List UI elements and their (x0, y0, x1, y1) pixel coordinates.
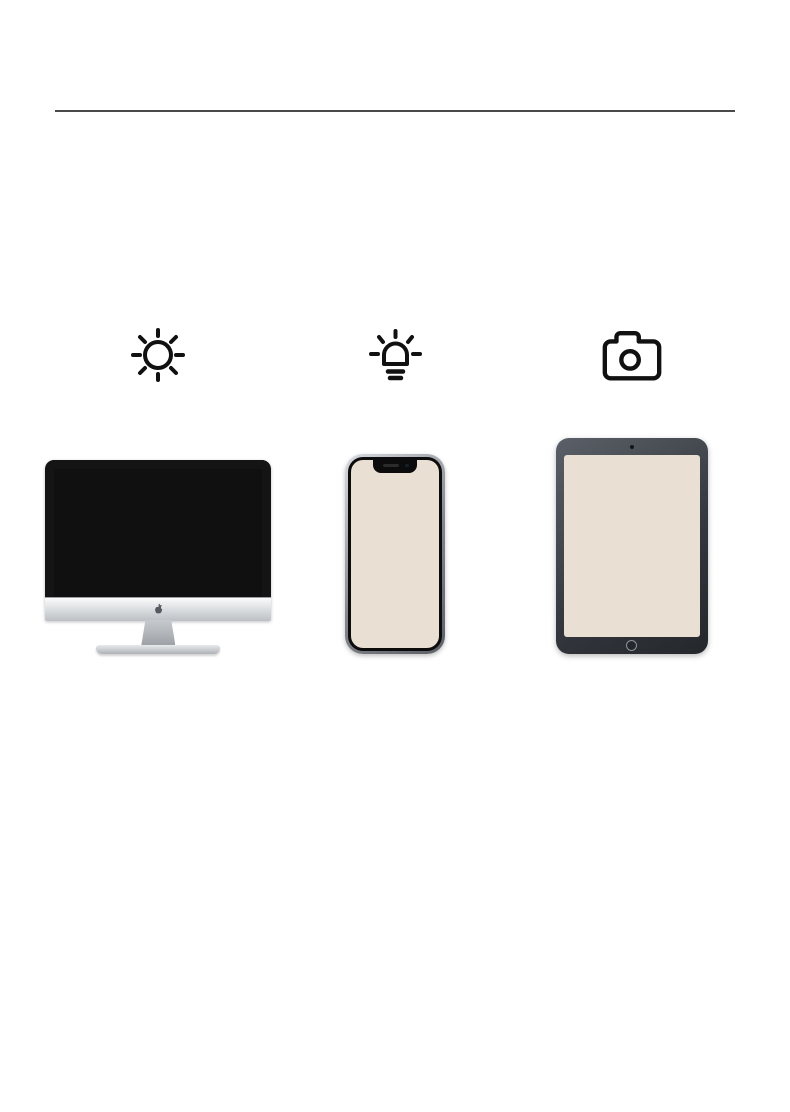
product-column-2 (277, 142, 514, 302)
device-column-phone (277, 436, 514, 676)
devices-row (40, 436, 750, 676)
tablet-mockup (513, 436, 750, 654)
bulb-icon (362, 324, 428, 388)
camera-icon (599, 324, 665, 388)
apple-logo-icon (153, 603, 164, 616)
tablet-home-button (626, 640, 637, 651)
phone-notch (373, 460, 417, 473)
tablet-screen-photo (564, 455, 700, 637)
sun-icon (125, 324, 191, 388)
product-images-row (40, 142, 750, 302)
wardrobe-image-strong-light (72, 142, 244, 302)
wardrobe-image-natural-light (546, 142, 718, 302)
computer-stand-neck (141, 620, 175, 645)
phone-mockup (277, 436, 514, 654)
product-column-1 (40, 142, 277, 302)
lighting-column-3 (513, 324, 750, 412)
computer-chin (45, 597, 271, 621)
color-difference-section (0, 0, 790, 1112)
header-divider (55, 110, 735, 112)
wardrobe-image-warm-light (309, 142, 481, 302)
lighting-column-1 (40, 324, 277, 412)
device-column-tablet (513, 436, 750, 676)
tablet-camera-dot (630, 445, 634, 449)
computer-stand-base (96, 645, 220, 654)
computer-screen-photo (45, 460, 271, 597)
lighting-column-2 (277, 324, 514, 412)
device-column-computer (40, 436, 277, 676)
lighting-icons-row (40, 324, 750, 412)
section-header (55, 0, 735, 86)
product-column-3 (513, 142, 750, 302)
phone-screen-photo (351, 460, 439, 648)
computer-mockup (40, 436, 277, 654)
